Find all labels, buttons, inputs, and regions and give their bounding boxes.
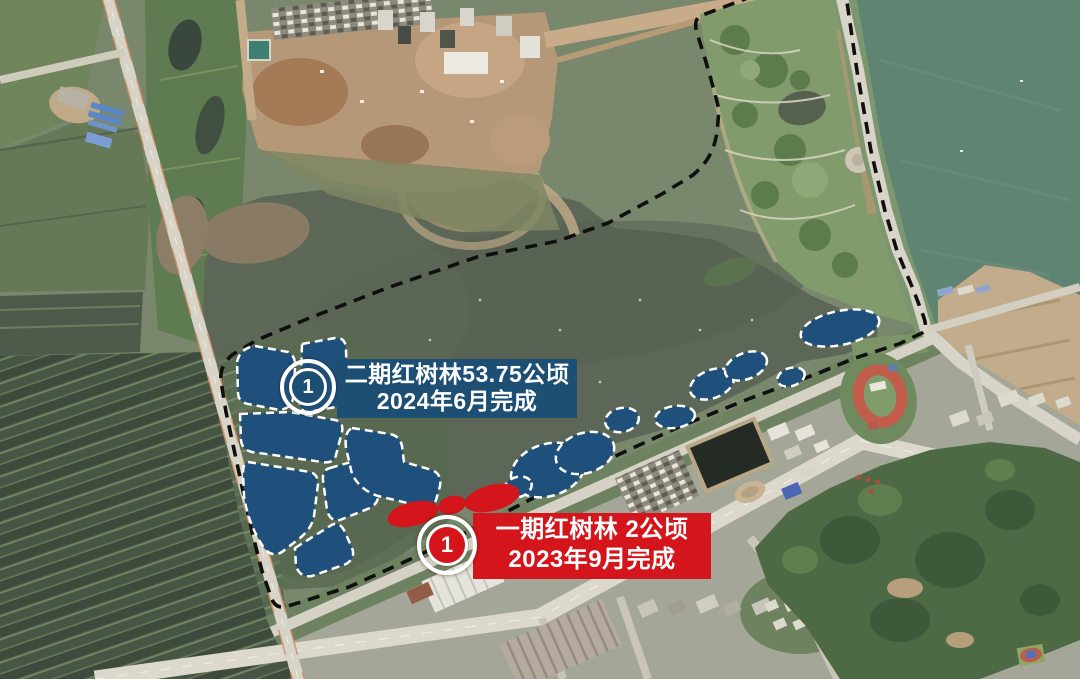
- phase2-marker-number: 1: [289, 368, 327, 406]
- phase1-label-line2: 2023年9月完成: [473, 545, 711, 575]
- phase1-label: 一期红树林 2公顷 2023年9月完成: [473, 513, 711, 579]
- phase2-marker: 1: [280, 359, 336, 415]
- phase1-marker-number: 1: [426, 524, 468, 566]
- phase1-marker: 1: [417, 515, 477, 575]
- phase2-label-line2: 2024年6月完成: [337, 388, 577, 415]
- phase2-label-line1: 二期红树林53.75公顷: [337, 361, 577, 388]
- phase2-label: 二期红树林53.75公顷 2024年6月完成: [337, 359, 577, 418]
- annotated-satellite-map: 1 二期红树林53.75公顷 2024年6月完成 1 一期红树林 2公顷 202…: [0, 0, 1080, 679]
- phase1-label-line1: 一期红树林 2公顷: [473, 515, 711, 545]
